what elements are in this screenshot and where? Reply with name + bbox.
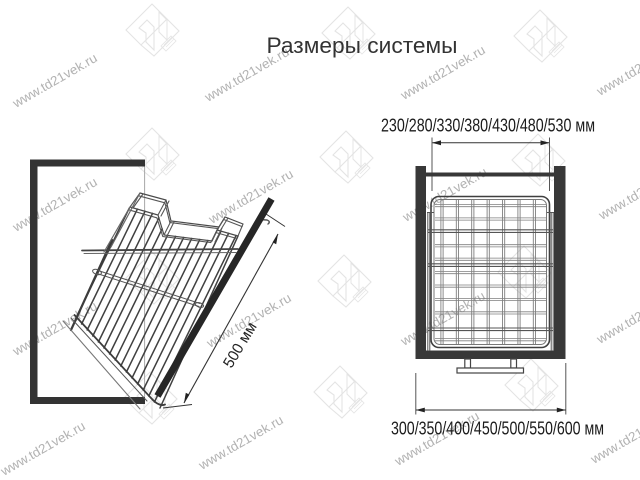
svg-text:230/280/330/380/430/480/530 мм: 230/280/330/380/430/480/530 мм <box>381 116 595 136</box>
svg-text:Размеры системы: Размеры системы <box>267 33 458 58</box>
svg-text:300/350/400/450/500/550/600 мм: 300/350/400/450/500/550/600 мм <box>391 419 604 439</box>
